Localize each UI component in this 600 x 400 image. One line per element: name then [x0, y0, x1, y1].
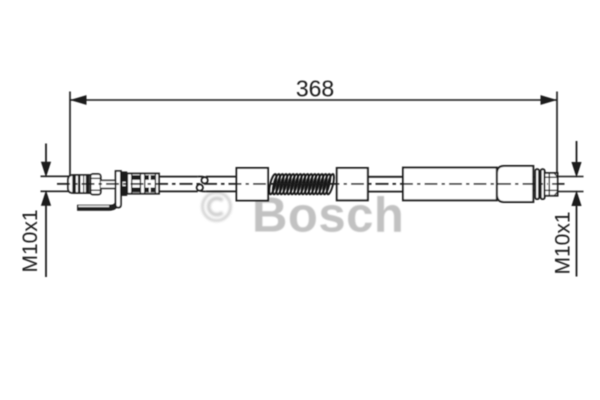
- svg-text:368: 368: [296, 76, 334, 102]
- svg-text:M10x1: M10x1: [19, 209, 42, 272]
- svg-text:M10x1: M10x1: [552, 211, 575, 274]
- svg-text:Bosch: Bosch: [252, 189, 404, 243]
